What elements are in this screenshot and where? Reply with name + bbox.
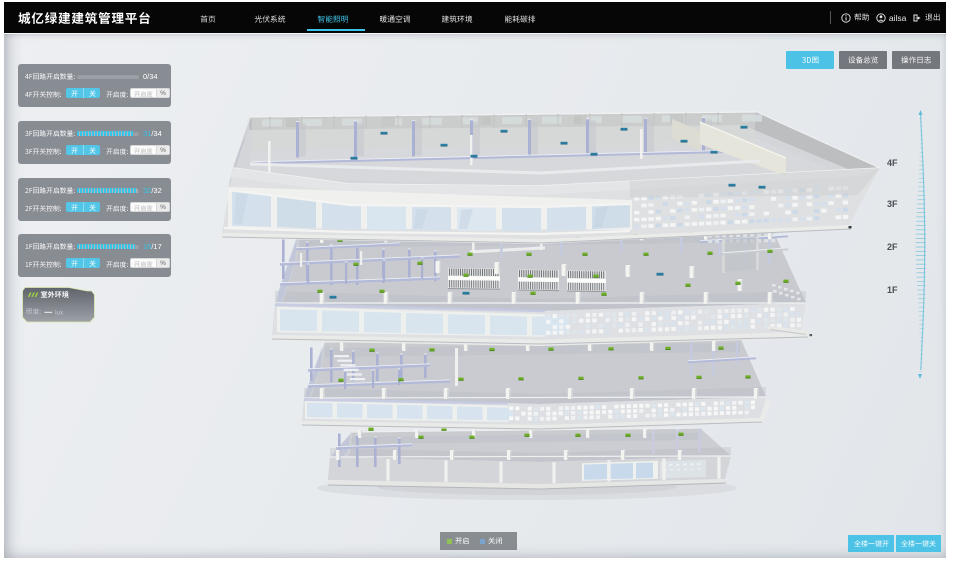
svg-text:lux: lux [55, 310, 64, 317]
